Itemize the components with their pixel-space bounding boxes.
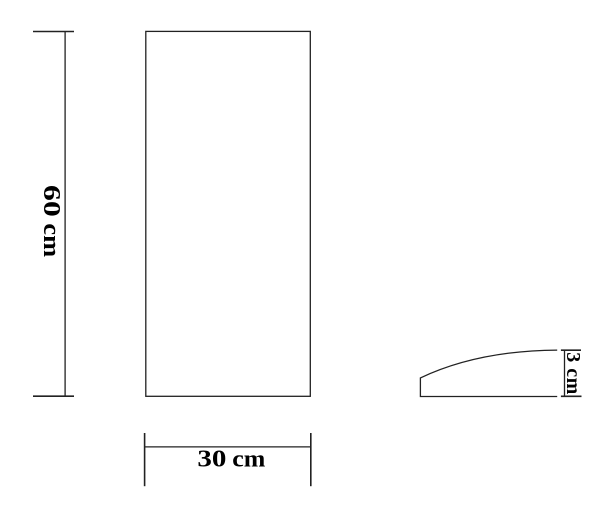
- svg-text:60: 60: [38, 185, 64, 217]
- svg-text:3 cm: 3 cm: [562, 352, 584, 395]
- svg-text:30: 30: [197, 445, 226, 472]
- svg-text:cm: cm: [38, 223, 64, 257]
- svg-text:cm: cm: [232, 446, 265, 472]
